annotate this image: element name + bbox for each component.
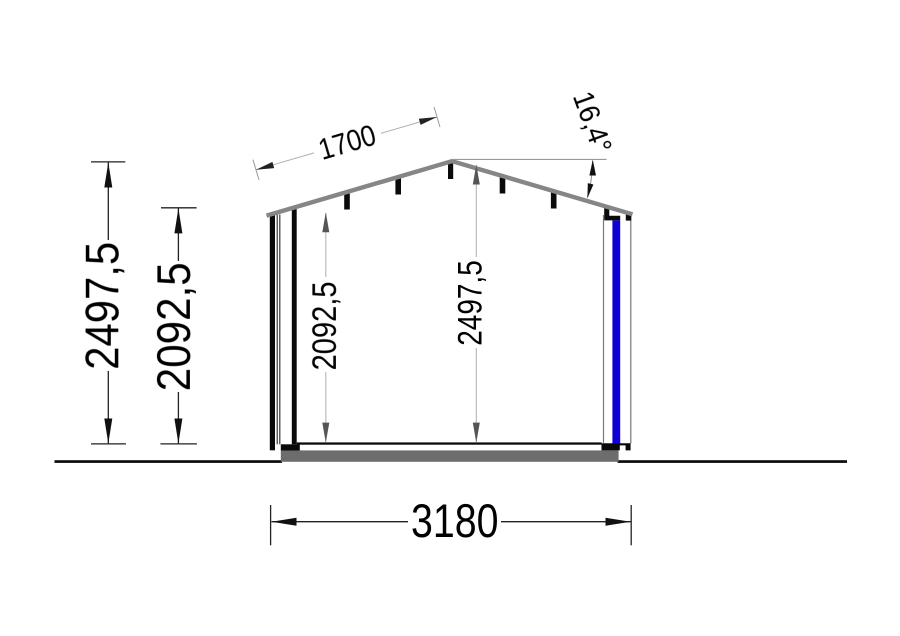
svg-text:2497,5: 2497,5 — [75, 242, 128, 370]
svg-text:2497,5: 2497,5 — [452, 260, 490, 346]
svg-text:2092,5: 2092,5 — [147, 262, 200, 391]
svg-text:3180: 3180 — [411, 494, 499, 547]
svg-text:2092,5: 2092,5 — [306, 281, 344, 370]
